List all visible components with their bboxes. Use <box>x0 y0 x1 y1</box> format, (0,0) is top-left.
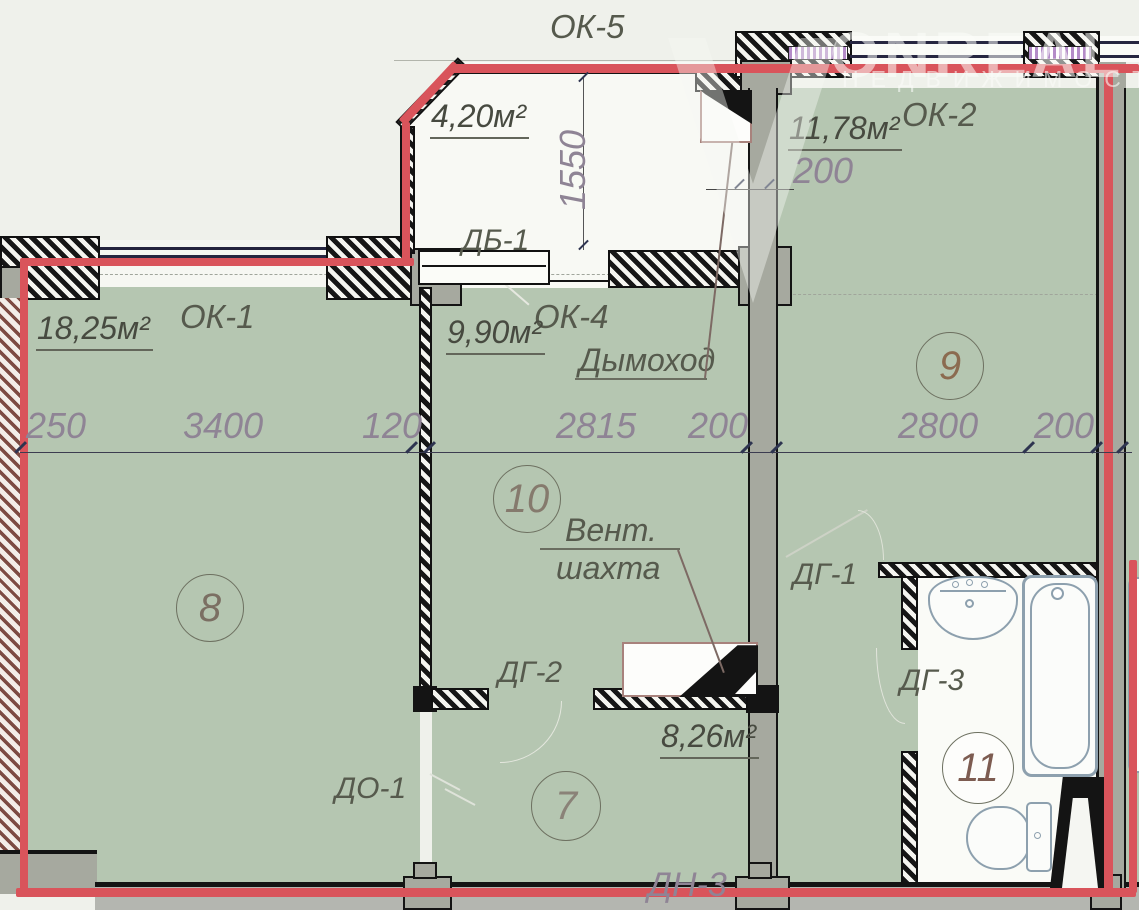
wall-bathroom-left-lower <box>901 751 918 891</box>
dim-text-200b: 200 <box>1034 408 1094 444</box>
chimney-underline <box>575 378 707 380</box>
wall-seg-right-of-door <box>608 250 745 288</box>
window-label-ok5: ОК-5 <box>550 10 624 43</box>
wall-right-edge <box>1124 88 1126 893</box>
room8-area-label: 18,25м² <box>36 312 153 351</box>
sink-faucet-dot <box>981 581 988 588</box>
room7-area-label: 8,26м² <box>660 720 759 759</box>
room7-number: 7 <box>555 786 577 826</box>
window-label-ok4: ОК-4 <box>534 300 608 333</box>
outline-red-upper-left <box>22 258 414 266</box>
bathtub-drain <box>1051 587 1064 600</box>
room7-number-circle: 7 <box>531 771 601 841</box>
room9-number: 9 <box>939 346 961 386</box>
sink-drain-dot <box>965 599 974 608</box>
wall-stub <box>431 688 489 710</box>
toilet-bowl <box>966 806 1030 870</box>
chimney-label: Дымоход <box>579 344 715 376</box>
balcony-area-label: 4,20м² <box>430 100 529 139</box>
floor-plan: 250 3400 120 2815 200 2800 200 1550 200 … <box>0 0 1139 910</box>
window-ok4-sill <box>548 280 610 282</box>
vent-label-line1: Вент. <box>565 514 657 546</box>
dim-text-wall-200: 200 <box>793 153 853 189</box>
outline-red-right <box>1104 64 1113 897</box>
dim-text-2800: 2800 <box>898 408 978 444</box>
outline-red-bottom <box>16 888 1136 897</box>
dim-text-3400: 3400 <box>183 408 263 444</box>
room10-area-label: 9,90м² <box>446 316 545 355</box>
wall-room8-room10-divider <box>419 287 432 692</box>
window-label-ok1: ОК-1 <box>180 300 254 333</box>
axis-dashed-line <box>788 294 1098 295</box>
sink-back-line <box>940 590 1006 592</box>
window-label-ok2: ОК-2 <box>902 98 976 131</box>
column-notch <box>748 862 772 879</box>
dim-text-120: 120 <box>362 408 422 444</box>
room10-number: 10 <box>505 479 550 519</box>
sink-faucet-dot <box>952 581 959 588</box>
column-notch <box>413 862 437 879</box>
outline-red-balcony-left <box>402 122 410 264</box>
door-label-do1: ДО-1 <box>335 774 406 804</box>
toilet-tank-dot <box>1034 832 1041 839</box>
dim-text-1550: 1550 <box>555 115 595 225</box>
room8-number: 8 <box>199 588 221 628</box>
watermark-subtitle: НЕДВИЖИМОСТ <box>842 66 1139 93</box>
vent-label-line2: шахта <box>556 552 660 584</box>
room8-number-circle: 8 <box>176 574 244 642</box>
door-label-dn3: ДН-3 <box>648 868 727 902</box>
door-label-dg3: ДГ-3 <box>900 666 964 696</box>
dim-text-250: 250 <box>26 408 86 444</box>
dim-text-2815: 2815 <box>556 408 636 444</box>
window-ok1-line <box>100 247 330 250</box>
outline-red-neighbor <box>1129 560 1137 893</box>
room11-number-circle: 11 <box>942 732 1014 804</box>
balcony-door-line <box>422 265 546 267</box>
door-label-dg1: ДГ-1 <box>793 560 857 590</box>
dimension-line-main <box>20 452 1132 453</box>
bathtub-inner <box>1030 583 1090 769</box>
sink-faucet-dot <box>966 579 973 586</box>
dim-text-200a: 200 <box>688 408 748 444</box>
wall-bathroom-left-upper <box>901 576 918 650</box>
outline-red-left <box>20 258 28 896</box>
room11-number: 11 <box>957 748 999 788</box>
vent-underline <box>540 548 680 550</box>
room10-number-circle: 10 <box>493 465 561 533</box>
door-label-dg2: ДГ-2 <box>498 658 562 688</box>
room9-number-circle: 9 <box>916 332 984 400</box>
door-label-db1: ДБ-1 <box>462 226 529 256</box>
